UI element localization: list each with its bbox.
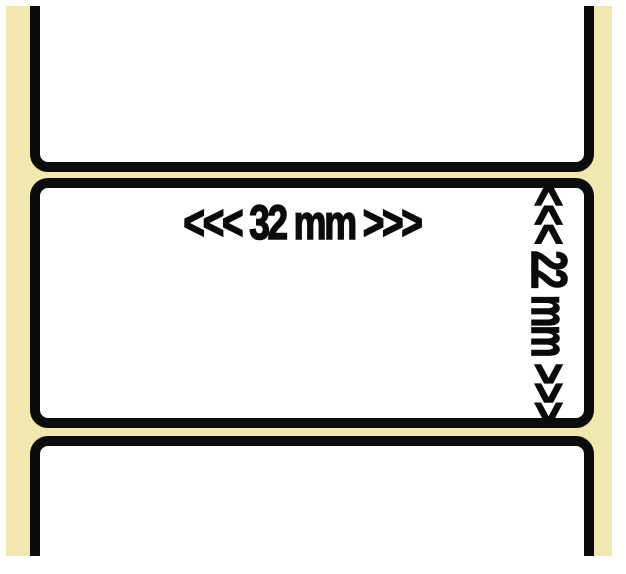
label-roll-photo: <<< 32 mm >>> <<< 22 mm >>> (0, 0, 626, 574)
label-top (30, 6, 594, 172)
width-dimension-text: <<< 32 mm >>> (100, 198, 503, 251)
liner-backing: <<< 32 mm >>> <<< 22 mm >>> (6, 6, 612, 556)
height-dimension-text: <<< 22 mm >>> (524, 185, 574, 420)
label-middle: <<< 32 mm >>> <<< 22 mm >>> (30, 178, 594, 428)
label-bottom (30, 436, 594, 556)
